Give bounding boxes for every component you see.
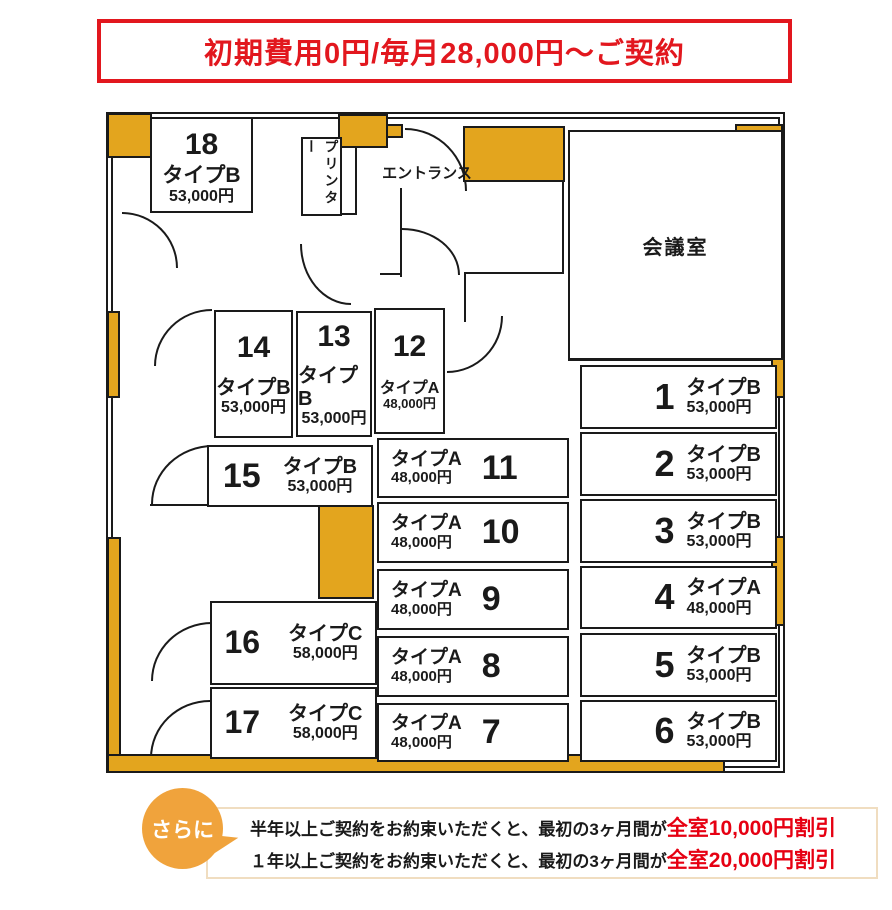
room-type: タイプA <box>687 577 761 599</box>
room-type: タイプA <box>391 647 462 668</box>
room-type: タイプC <box>288 623 362 645</box>
room-number: 8 <box>482 647 501 685</box>
promo-line-1-text: 半年以上ご契約をお約束いただくと、最初の3ヶ月間が <box>250 820 667 839</box>
accent-strip-left-lower <box>107 537 121 773</box>
room-number: 10 <box>482 513 520 551</box>
room-number: 1 <box>655 377 675 417</box>
room-number: 3 <box>655 511 675 551</box>
room-number: 12 <box>393 330 426 364</box>
room-type: タイプA <box>380 380 440 398</box>
accent-block-center <box>318 505 374 599</box>
room-7: タイプA48,000円 7 <box>377 703 569 762</box>
room-type: タイプB <box>216 377 290 399</box>
printer-label: プリンター <box>302 139 342 214</box>
room-price: 48,000円 <box>391 470 452 487</box>
room-type: タイプA <box>391 580 462 601</box>
promo-bubble: さらに <box>142 788 223 869</box>
room-10: タイプA48,000円 10 <box>377 502 569 563</box>
room-number: 14 <box>237 331 270 365</box>
room-11: タイプA48,000円 11 <box>377 438 569 498</box>
room-5: 5 タイプB53,000円 <box>580 633 777 697</box>
room-price: 53,000円 <box>221 399 286 417</box>
wall-segment <box>355 138 357 215</box>
room-number: 13 <box>317 320 350 354</box>
promo-line-2-highlight: 全室20,000円割引 <box>667 849 836 872</box>
room-number: 18 <box>185 128 218 162</box>
room-number: 7 <box>482 713 501 751</box>
room-number: 4 <box>655 577 675 617</box>
promo-banner: 初期費用0円/毎月28,000円〜ご契約 <box>97 19 792 83</box>
room-number: 9 <box>482 580 501 618</box>
room-price: 53,000円 <box>687 399 752 417</box>
room-type: タイプB <box>687 377 761 399</box>
room-13: 13 タイプB53,000円 <box>296 311 372 437</box>
room-type: タイプB <box>283 456 357 478</box>
promo-line-2-text: １年以上ご契約をお約束いただくと、最初の3ヶ月間が <box>250 852 667 871</box>
room-8: タイプA48,000円 8 <box>377 636 569 697</box>
room-price: 48,000円 <box>391 669 452 686</box>
room-number: 2 <box>655 444 675 484</box>
room-type: タイプA <box>391 449 462 470</box>
room-9: タイプA48,000円 9 <box>377 569 569 630</box>
room-price: 48,000円 <box>391 735 452 752</box>
wall-segment <box>464 272 466 322</box>
room-15: 15 タイプB53,000円 <box>207 445 373 507</box>
room-17: 17 タイプC58,000円 <box>210 687 377 759</box>
room-12: 12 タイプA48,000円 <box>374 308 445 434</box>
promo-banner-text: 初期費用0円/毎月28,000円〜ご契約 <box>204 30 685 72</box>
room-price: 53,000円 <box>302 410 367 428</box>
room-number: 16 <box>224 625 260 661</box>
promo-line-2: １年以上ご契約をお約束いただくと、最初の3ヶ月間が全室20,000円割引 <box>250 844 876 874</box>
wall-segment <box>150 504 208 506</box>
room-type: タイプA <box>391 513 462 534</box>
meeting-room: 会議室 <box>568 130 783 360</box>
wall-segment <box>466 272 564 274</box>
room-price: 48,000円 <box>383 397 436 412</box>
accent-strip-left-upper <box>107 311 120 398</box>
room-number: 11 <box>482 449 518 487</box>
room-number: 6 <box>655 711 675 751</box>
meeting-room-label: 会議室 <box>643 231 709 260</box>
promo-bubble-label: さらに <box>151 814 214 844</box>
accent-block-notch <box>386 124 403 138</box>
room-number: 17 <box>224 705 260 741</box>
printer-room: プリンター <box>301 137 342 216</box>
accent-block-top-center <box>338 114 388 148</box>
wall-segment <box>562 182 564 274</box>
room-18: 18 タイプB53,000円 <box>150 117 253 213</box>
room-type: タイプB <box>298 365 370 410</box>
room-type: タイプA <box>391 713 462 734</box>
promo-box: 半年以上ご契約をお約束いただくと、最初の3ヶ月間が全室10,000円割引 １年以… <box>206 807 878 879</box>
room-type: タイプB <box>687 511 761 533</box>
room-price: 48,000円 <box>687 600 752 618</box>
entrance-label: エントランス <box>372 162 482 183</box>
promo-line-1: 半年以上ご契約をお約束いただくと、最初の3ヶ月間が全室10,000円割引 <box>250 812 876 842</box>
room-6: 6 タイプB53,000円 <box>580 700 777 762</box>
room-price: 48,000円 <box>391 535 452 552</box>
room-16: 16 タイプC58,000円 <box>210 601 377 685</box>
room-type: タイプB <box>687 711 761 733</box>
room-price: 48,000円 <box>391 602 452 619</box>
room-price: 53,000円 <box>169 188 234 206</box>
room-price: 53,000円 <box>687 533 752 551</box>
room-price: 53,000円 <box>687 733 752 751</box>
room-price: 58,000円 <box>293 725 358 743</box>
room-price: 53,000円 <box>687 667 752 685</box>
room-price: 53,000円 <box>287 478 352 496</box>
room-4: 4 タイプA48,000円 <box>580 566 777 629</box>
promo-line-1-highlight: 全室10,000円割引 <box>667 817 836 840</box>
room-price: 53,000円 <box>687 466 752 484</box>
room-type: タイプB <box>687 645 761 667</box>
accent-block-top-left <box>107 113 152 158</box>
room-type: タイプB <box>162 164 240 188</box>
room-type: タイプB <box>687 444 761 466</box>
wall-segment <box>380 273 402 275</box>
room-number: 15 <box>223 457 261 495</box>
room-type: タイプC <box>288 703 362 725</box>
room-number: 5 <box>655 645 675 685</box>
room-14: 14 タイプB53,000円 <box>214 310 293 438</box>
room-3: 3 タイプB53,000円 <box>580 499 777 563</box>
room-2: 2 タイプB53,000円 <box>580 432 777 496</box>
room-price: 58,000円 <box>293 645 358 663</box>
room-1: 1 タイプB53,000円 <box>580 365 777 429</box>
